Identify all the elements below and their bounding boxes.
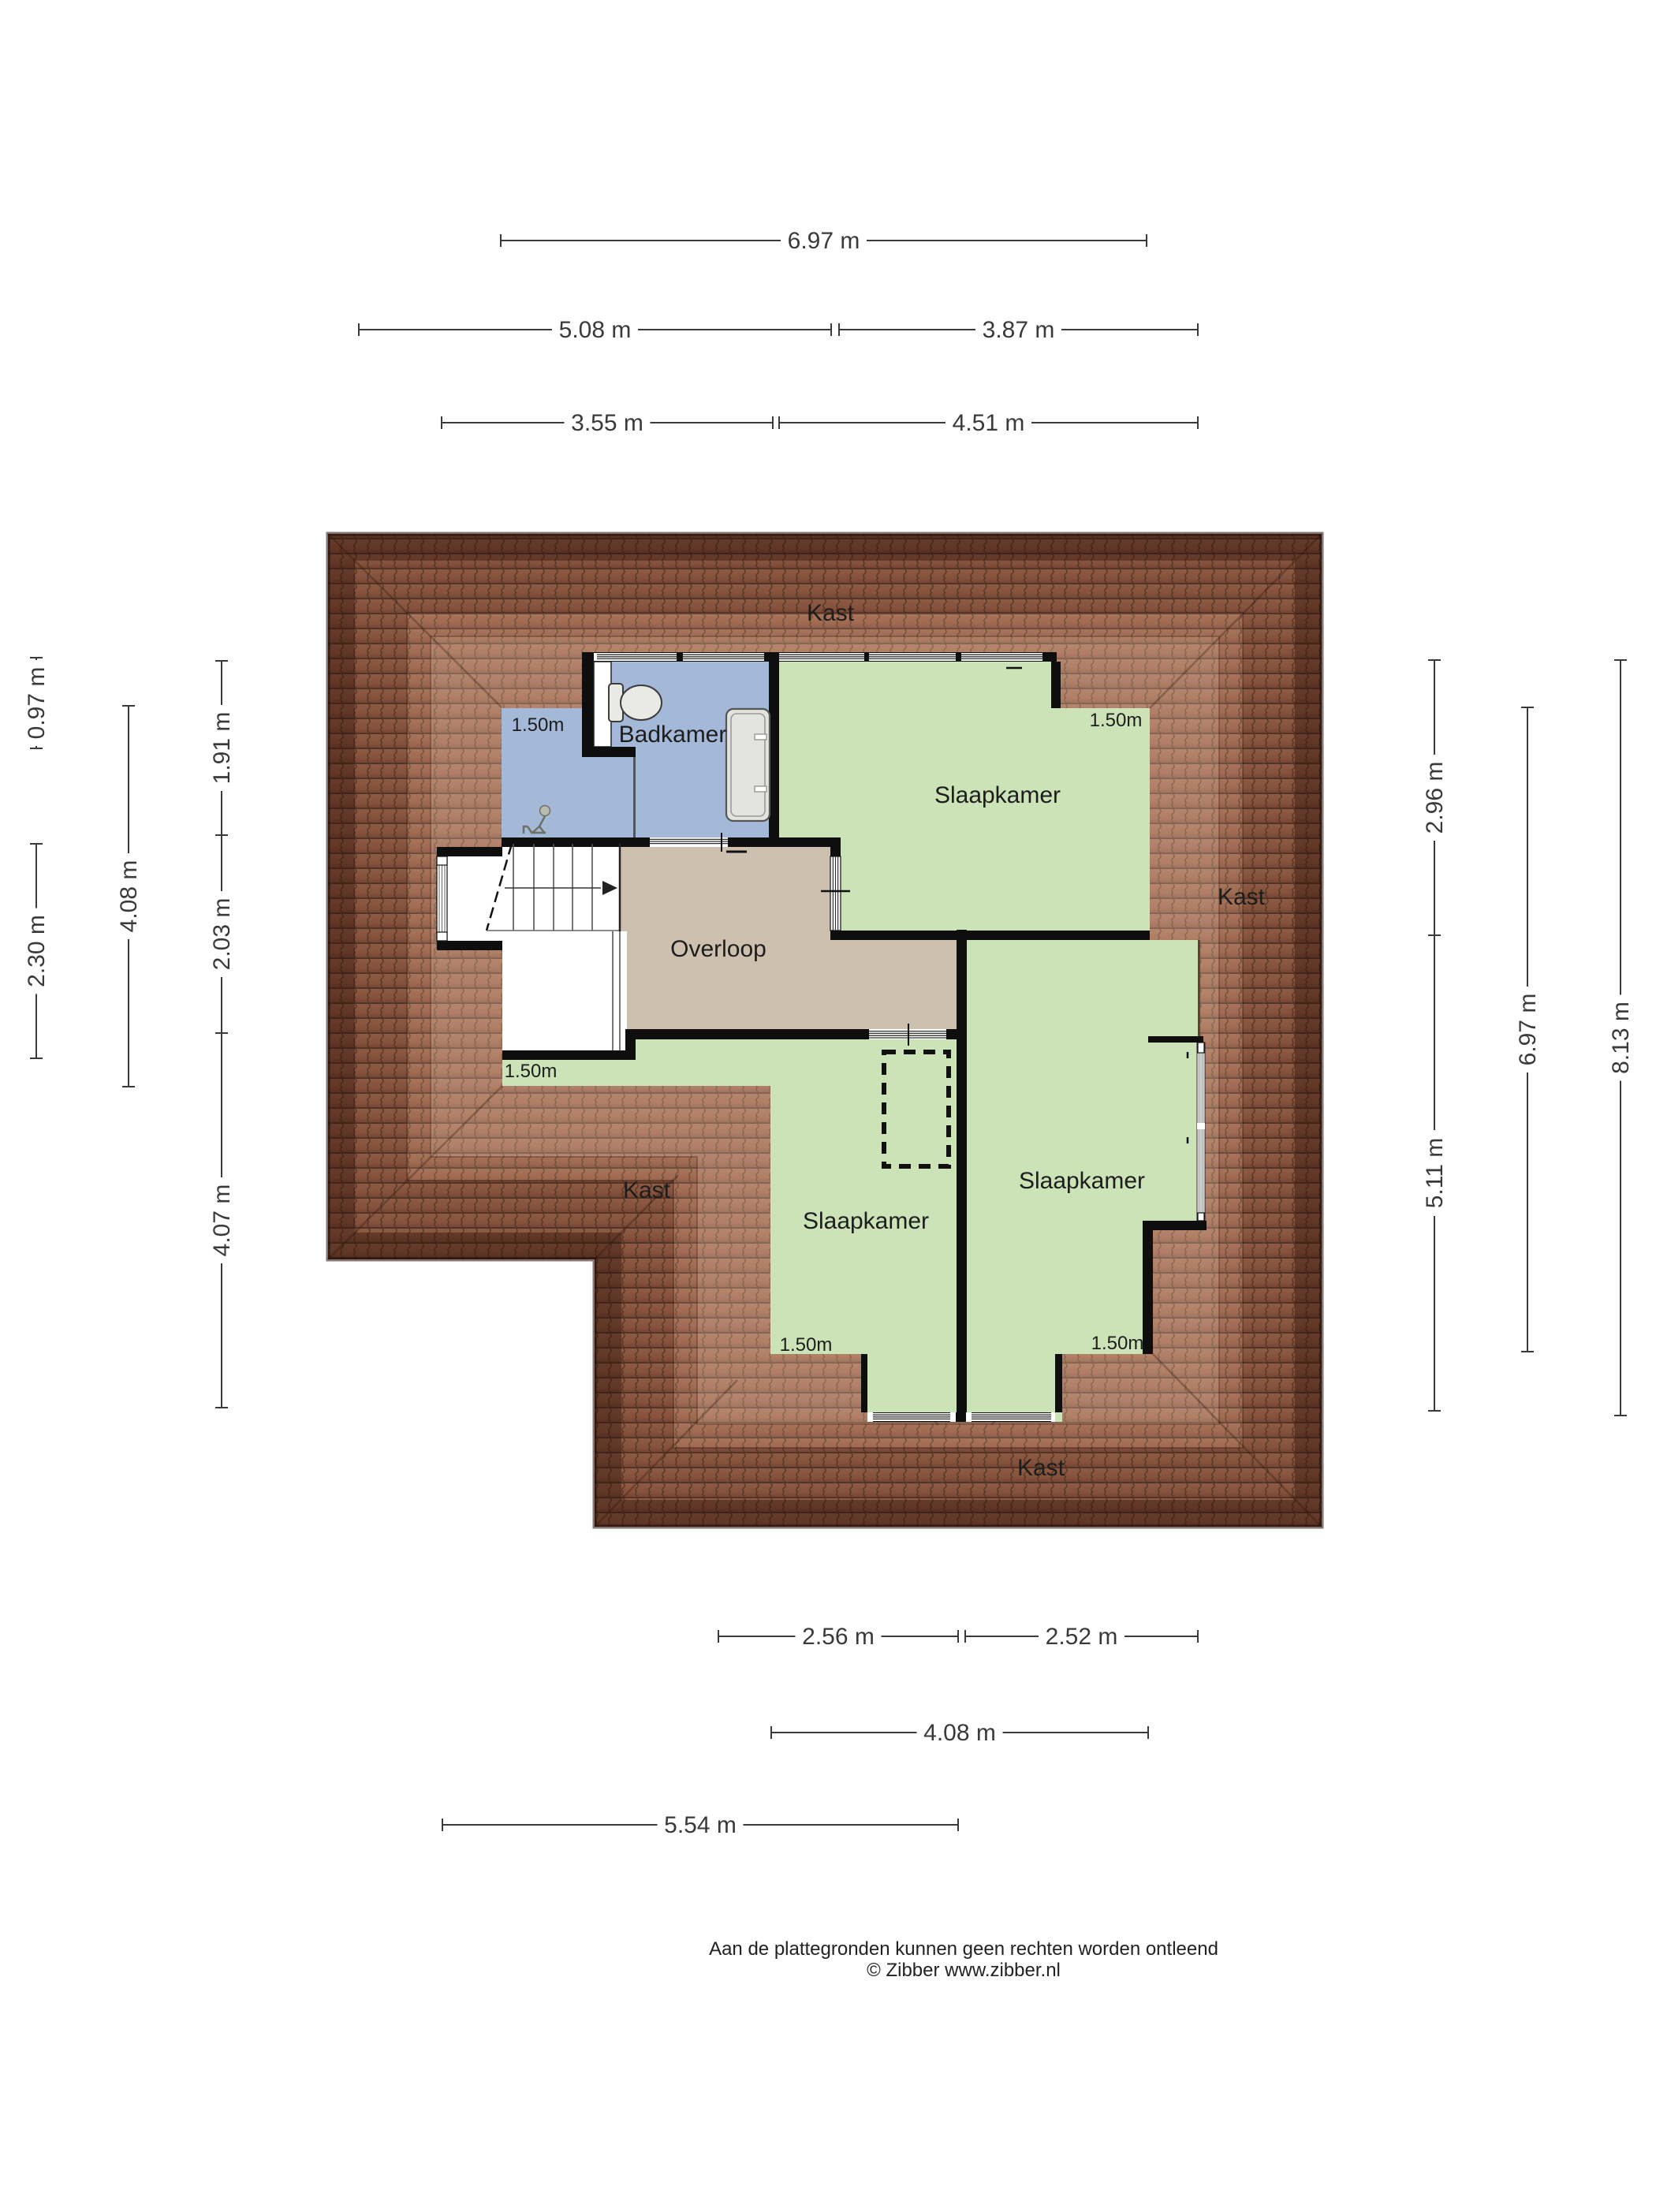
svg-text:1.50m: 1.50m: [780, 1334, 833, 1356]
svg-text:6.97 m: 6.97 m: [1515, 994, 1541, 1066]
svg-text:Kast: Kast: [807, 600, 855, 626]
svg-text:3.87 m: 3.87 m: [983, 317, 1055, 343]
svg-text:© Zibber www.zibber.nl: © Zibber www.zibber.nl: [867, 1960, 1061, 1981]
svg-text:Overloop: Overloop: [670, 936, 766, 962]
svg-text:1.50m: 1.50m: [512, 714, 565, 736]
svg-text:2.03 m: 2.03 m: [209, 898, 235, 971]
svg-text:6.97 m: 6.97 m: [788, 228, 860, 254]
svg-text:8.13 m: 8.13 m: [1608, 1002, 1634, 1074]
svg-text:4.08 m: 4.08 m: [116, 860, 142, 933]
svg-text:1.50m: 1.50m: [505, 1061, 558, 1082]
svg-text:Slaapkamer: Slaapkamer: [1019, 1168, 1145, 1194]
svg-text:3.55 m: 3.55 m: [571, 410, 643, 436]
svg-text:1.91 m: 1.91 m: [209, 712, 235, 785]
svg-text:2.96 m: 2.96 m: [1422, 762, 1448, 834]
svg-text:Kast: Kast: [1218, 884, 1266, 910]
svg-text:0.97 m: 0.97 m: [24, 667, 50, 740]
svg-text:Aan de plattegronden kunnen ge: Aan de plattegronden kunnen geen rechten…: [709, 1938, 1218, 1960]
svg-text:Slaapkamer: Slaapkamer: [934, 782, 1061, 808]
svg-text:5.11 m: 5.11 m: [1422, 1138, 1448, 1209]
svg-text:2.56 m: 2.56 m: [802, 1624, 875, 1650]
svg-text:2.52 m: 2.52 m: [1046, 1624, 1118, 1650]
svg-text:4.51 m: 4.51 m: [953, 410, 1025, 436]
svg-text:1.50m: 1.50m: [1090, 710, 1143, 731]
svg-text:5.08 m: 5.08 m: [559, 317, 632, 343]
svg-text:1.50m: 1.50m: [1091, 1333, 1144, 1354]
svg-text:Slaapkamer: Slaapkamer: [803, 1208, 929, 1234]
svg-text:Badkamer: Badkamer: [619, 722, 727, 748]
svg-text:4.08 m: 4.08 m: [923, 1720, 996, 1746]
svg-text:4.07 m: 4.07 m: [209, 1184, 235, 1257]
svg-text:2.30 m: 2.30 m: [24, 915, 50, 987]
svg-text:5.54 m: 5.54 m: [664, 1812, 737, 1838]
svg-text:Kast: Kast: [623, 1177, 671, 1203]
svg-text:Kast: Kast: [1017, 1455, 1065, 1481]
